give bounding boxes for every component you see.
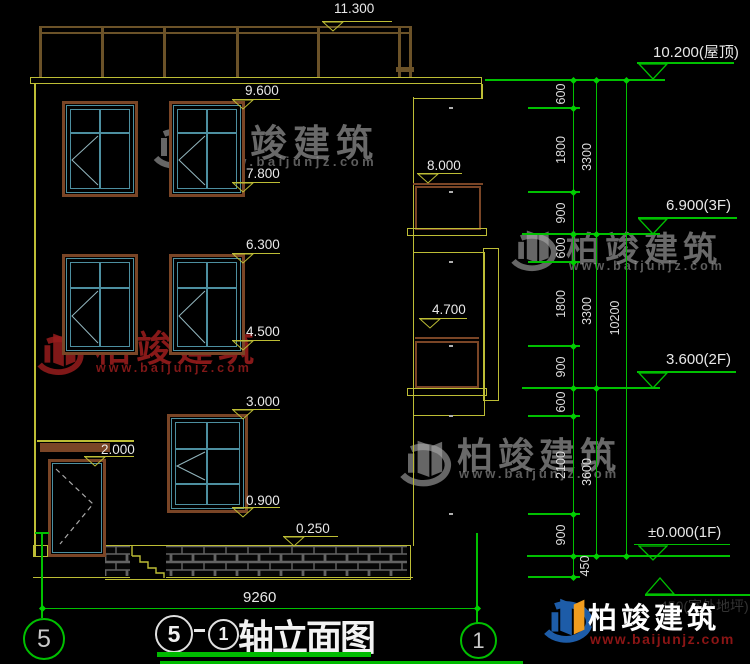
chain-line-c xyxy=(626,80,627,556)
level-triangle-icon xyxy=(232,409,254,420)
grid-bubble-1: 1 xyxy=(460,622,497,659)
chain-value: 10200 xyxy=(608,288,622,348)
dim-bay: 4.700 xyxy=(432,302,466,317)
watermark-logo-icon xyxy=(392,426,456,496)
dim-w3-sill: 7.800 xyxy=(246,166,280,181)
chain-value: 900 xyxy=(554,505,568,565)
watermark-url: www.baijunjz.com xyxy=(569,259,725,273)
level-triangle-icon xyxy=(638,63,668,80)
dim-w2-top: 6.300 xyxy=(246,237,280,252)
entry-door xyxy=(48,459,106,557)
roof-slab-end xyxy=(481,84,483,98)
dim-w1-top: 3.000 xyxy=(246,394,280,409)
title-dash xyxy=(194,629,205,632)
brand-url: www.baijunjz.com xyxy=(590,631,735,647)
door-swing-icon xyxy=(51,462,97,548)
balcony-slab xyxy=(407,228,487,236)
bay-slab xyxy=(407,388,487,396)
chain-value: 600 xyxy=(554,64,568,124)
title-underline-1 xyxy=(157,652,371,657)
left-wall xyxy=(34,84,35,556)
chain-value: 1800 xyxy=(554,274,568,334)
level-triangle-icon xyxy=(322,21,344,32)
chain-value: 3600 xyxy=(580,442,594,502)
watermark-logo-icon xyxy=(504,219,561,278)
balcony-railing xyxy=(415,186,481,230)
level-triangle-icon xyxy=(419,318,441,329)
dim-balcony: 8.000 xyxy=(427,158,461,173)
level-triangle-icon xyxy=(84,456,106,467)
level-triangle-icon xyxy=(417,173,439,184)
casement-icon xyxy=(70,289,100,345)
bay-window xyxy=(415,341,479,388)
window-3f-left xyxy=(62,101,138,197)
casement-icon xyxy=(177,289,207,345)
axis-number: 5 xyxy=(168,621,181,648)
roof-soffit-line xyxy=(413,98,483,99)
level-3f: 6.900(3F) xyxy=(666,197,731,214)
level-triangle-icon xyxy=(283,536,305,547)
window-2f-left xyxy=(62,254,138,355)
canopy-slab xyxy=(40,443,110,452)
chain-value: 3300 xyxy=(580,127,594,187)
dim-w2-sill: 4.500 xyxy=(246,324,280,339)
bay-fin xyxy=(483,248,499,401)
level-roof: 10.200(屋顶) xyxy=(653,41,739,62)
chain-value: 3300 xyxy=(580,281,594,341)
level-triangle-icon xyxy=(232,253,254,264)
chain-value: 2100 xyxy=(554,435,568,495)
entry-steps xyxy=(130,546,166,578)
dim-parapet: 11.300 xyxy=(334,1,374,16)
axis-number: 1 xyxy=(218,624,228,645)
dim-plinth: 0.250 xyxy=(296,521,330,536)
level-1f: ±0.000(1F) xyxy=(648,524,721,541)
level-triangle-icon xyxy=(232,340,254,351)
chain-value: 1800 xyxy=(554,120,568,180)
chain-value: 600 xyxy=(554,372,568,432)
grid-number: 5 xyxy=(37,625,51,654)
level-triangle-up-icon xyxy=(645,577,675,595)
title-axis-start: 5 xyxy=(155,615,193,653)
level-triangle-icon xyxy=(232,182,254,193)
elevation-drawing: 柏竣建筑 www.baijunjz.com 柏竣建筑 www.baijunjz.… xyxy=(0,0,750,664)
watermark-url: www.baijunjz.com xyxy=(96,361,252,375)
level-triangle-icon xyxy=(232,507,254,518)
window-1f xyxy=(167,414,248,513)
chain-value: 600 xyxy=(554,218,568,278)
casement-icon xyxy=(70,134,100,187)
level-triangle-icon xyxy=(638,545,668,561)
level-2f: 3.600(2F) xyxy=(666,351,731,368)
chain-line-b xyxy=(596,80,597,556)
level-triangle-icon xyxy=(232,99,254,110)
grid-number: 1 xyxy=(472,628,484,654)
title-underline-2 xyxy=(160,661,523,664)
overall-width: 9260 xyxy=(243,589,276,606)
grid-bubble-5: 5 xyxy=(23,618,65,660)
casement-icon xyxy=(177,134,207,187)
chain-line-a xyxy=(573,80,574,577)
title-axis-end: 1 xyxy=(208,619,239,650)
dim-w3-top: 9.600 xyxy=(245,83,279,98)
casement-icon xyxy=(175,450,207,482)
bay-window-top xyxy=(415,337,479,339)
